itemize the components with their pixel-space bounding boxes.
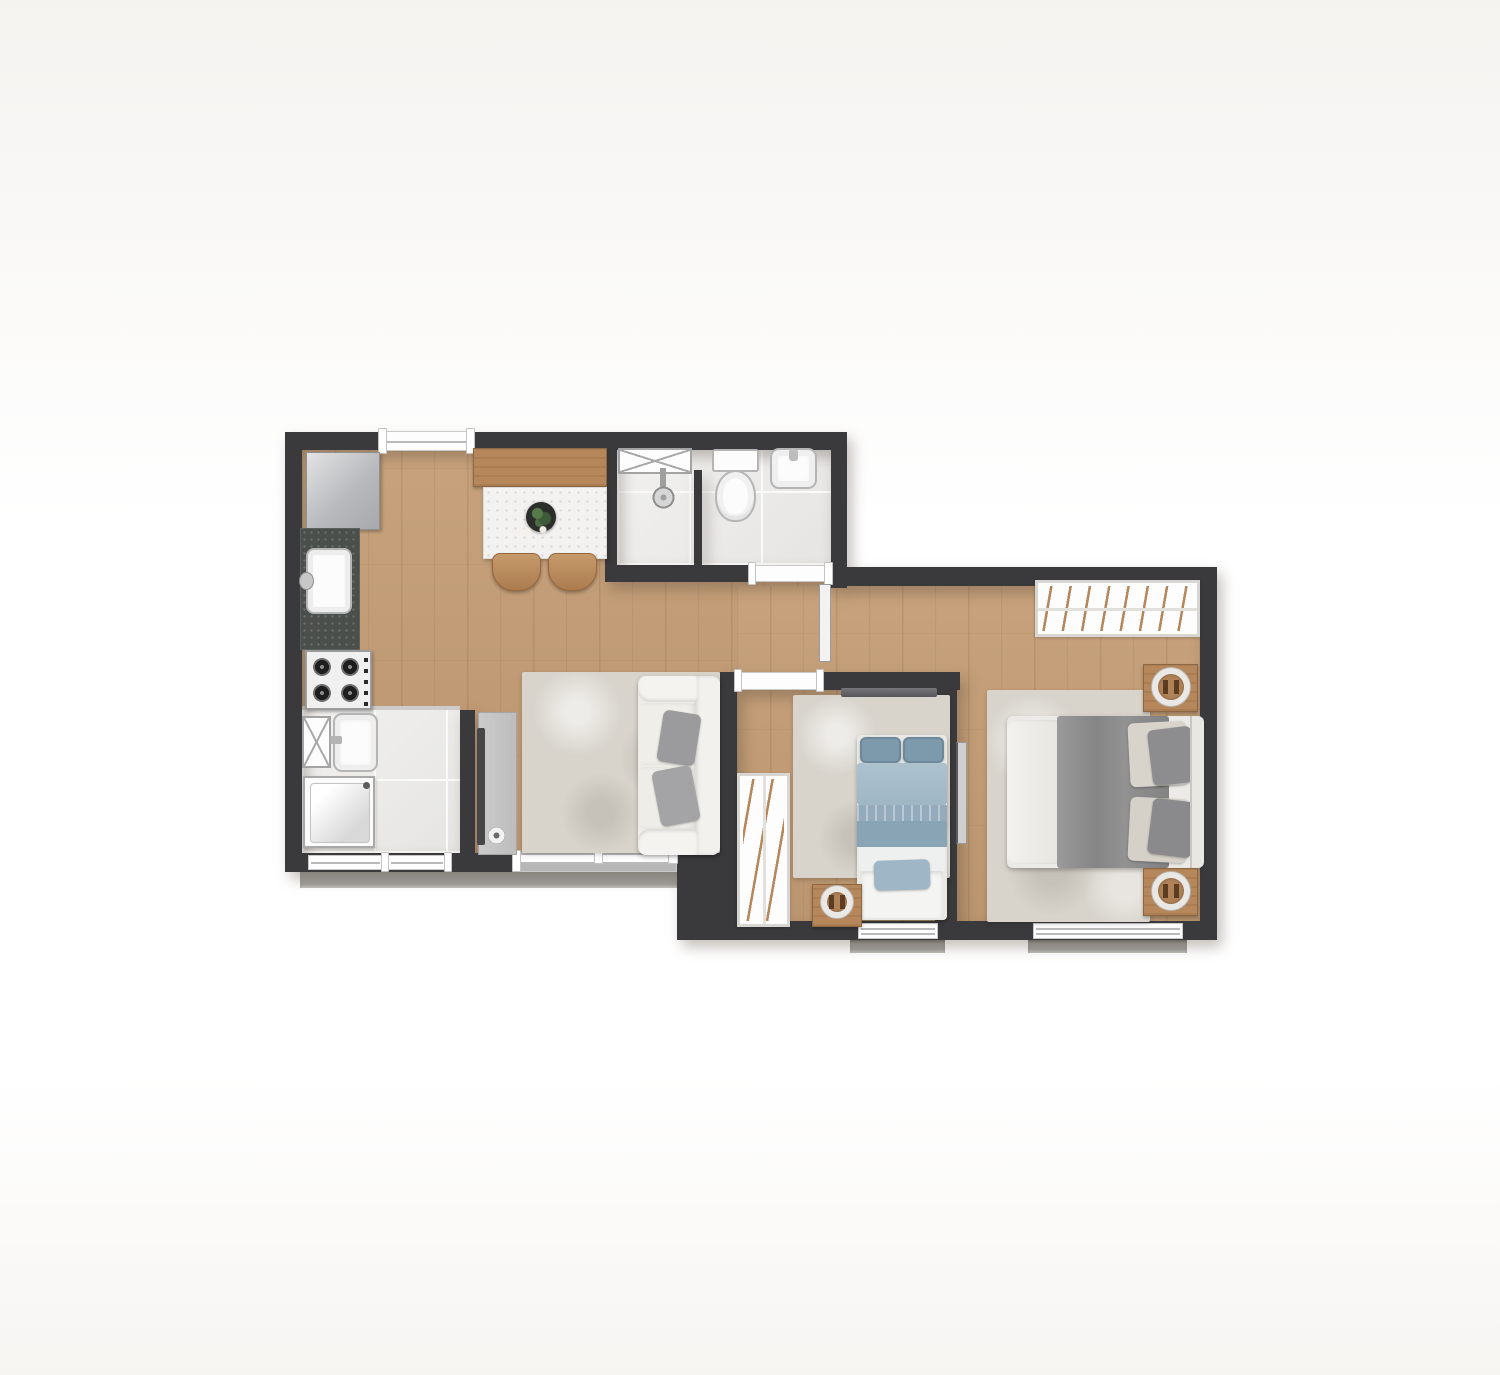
bathroom-door-leaf bbox=[819, 584, 831, 662]
floor-plan bbox=[0, 0, 1500, 1375]
bedroom-couple-door-leaf bbox=[956, 742, 967, 844]
door-leaves-layer bbox=[0, 0, 1500, 1375]
